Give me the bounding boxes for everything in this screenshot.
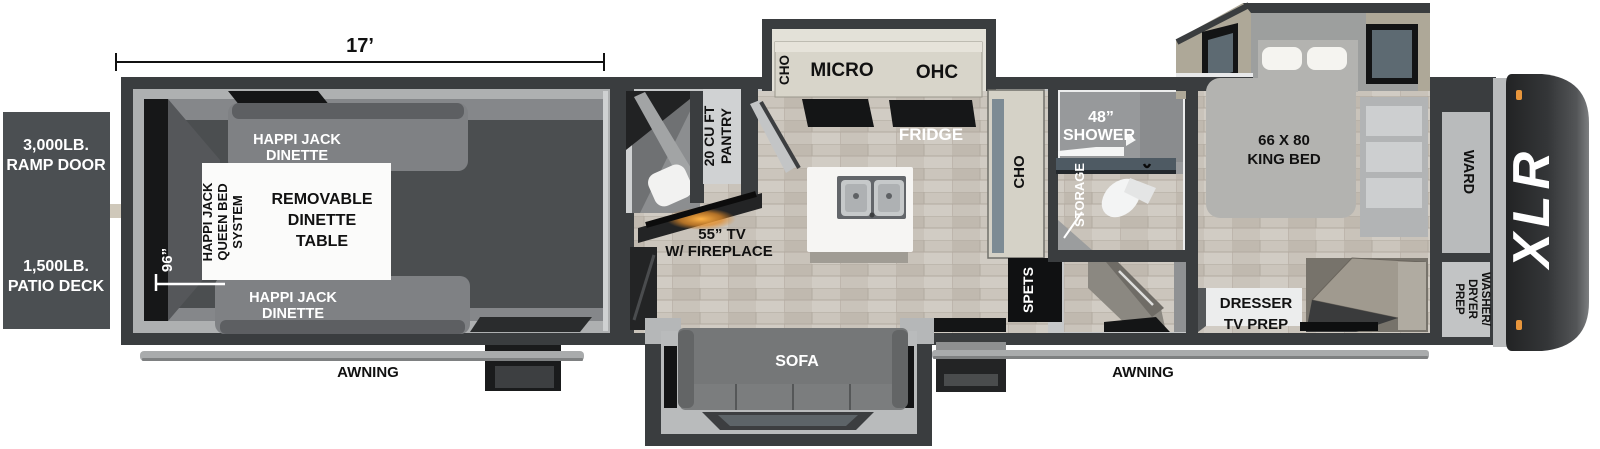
svg-text:96”: 96” (159, 248, 176, 272)
svg-text:DINETTE: DINETTE (288, 212, 357, 229)
svg-text:TABLE: TABLE (296, 233, 348, 250)
svg-text:SHOWER: SHOWER (1063, 127, 1135, 144)
svg-text:DINETTE: DINETTE (262, 306, 324, 322)
svg-text:CHO: CHO (1011, 155, 1028, 189)
svg-text:REMOVABLE: REMOVABLE (271, 191, 372, 208)
svg-text:DINETTE: DINETTE (266, 148, 328, 164)
svg-text:XLR: XLR (1503, 146, 1561, 271)
svg-text:STORAGE: STORAGE (1072, 163, 1087, 227)
svg-text:SOFA: SOFA (775, 353, 819, 370)
svg-text:1,500LB.: 1,500LB. (23, 258, 89, 275)
svg-text:HAPPI JACK: HAPPI JACK (200, 182, 215, 261)
svg-text:FRIDGE: FRIDGE (899, 125, 963, 144)
svg-text:HAPPI JACK: HAPPI JACK (249, 290, 337, 306)
svg-text:48”: 48” (1088, 109, 1114, 126)
svg-text:3,000LB.: 3,000LB. (23, 137, 89, 154)
svg-text:SYSTEM: SYSTEM (230, 195, 245, 248)
svg-text:DRYER: DRYER (1466, 279, 1478, 320)
svg-text:DRESSER: DRESSER (1220, 295, 1293, 312)
svg-text:PATIO DECK: PATIO DECK (8, 278, 105, 295)
svg-text:OHC: OHC (916, 62, 959, 83)
svg-text:AWNING: AWNING (1112, 364, 1174, 381)
svg-text:17’: 17’ (346, 35, 374, 57)
svg-text:HAPPI JACK: HAPPI JACK (253, 132, 341, 148)
svg-text:SPETS: SPETS (1020, 267, 1036, 313)
svg-text:66 X 80: 66 X 80 (1258, 132, 1310, 149)
svg-text:AWNING: AWNING (337, 364, 399, 381)
svg-text:20 CU FT: 20 CU FT (701, 105, 717, 166)
svg-text:W/ FIREPLACE: W/ FIREPLACE (665, 243, 773, 260)
svg-text:RAMP DOOR: RAMP DOOR (6, 157, 106, 174)
svg-text:CHO: CHO (777, 55, 792, 85)
svg-text:KING BED: KING BED (1247, 151, 1321, 168)
svg-text:WARD: WARD (1460, 150, 1476, 194)
svg-text:MICRO: MICRO (810, 60, 873, 81)
svg-text:WASHER/: WASHER/ (1479, 272, 1491, 326)
svg-text:PANTRY: PANTRY (718, 107, 734, 164)
svg-text:55” TV: 55” TV (698, 226, 746, 243)
svg-text:PREP: PREP (1453, 283, 1465, 315)
svg-text:QUEEN BED: QUEEN BED (215, 183, 230, 260)
svg-text:TV PREP: TV PREP (1224, 316, 1288, 333)
